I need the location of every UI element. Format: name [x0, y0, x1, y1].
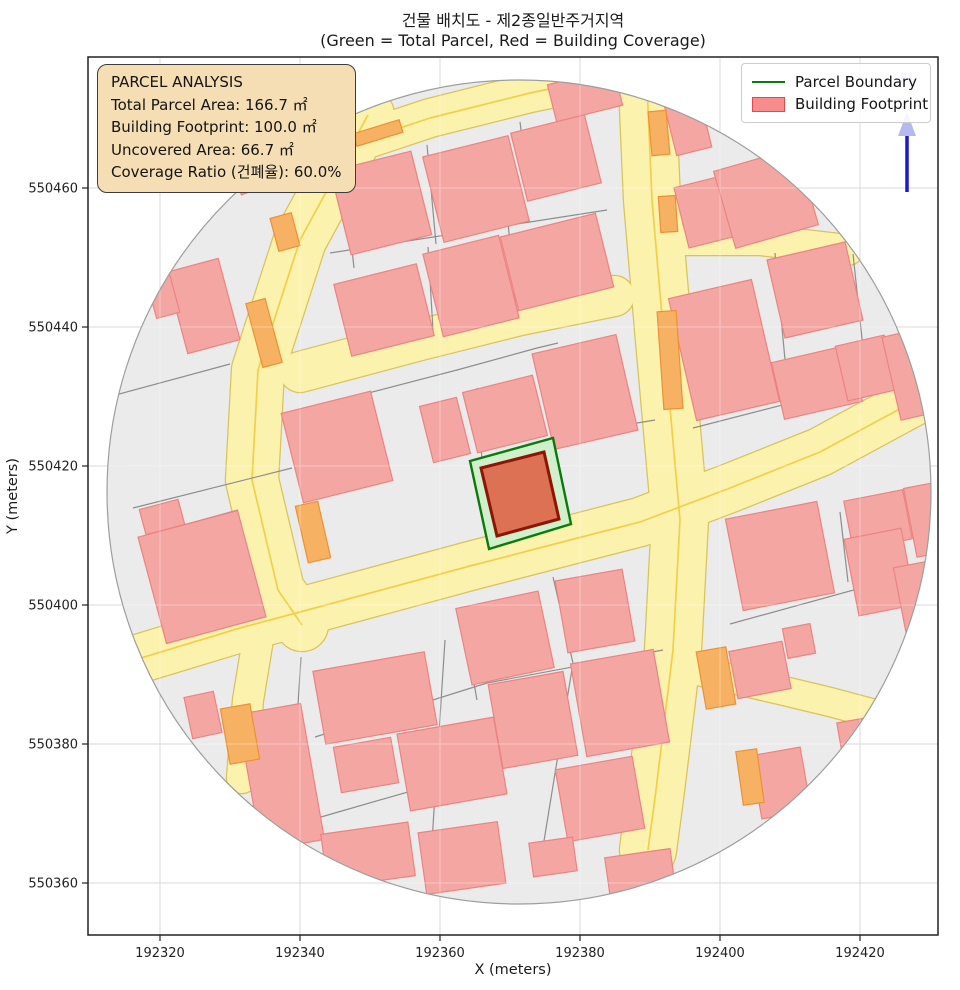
x-tick-label: 192420	[835, 946, 885, 961]
y-tick-label: 550460	[28, 182, 78, 197]
x-tick-label: 192360	[415, 946, 465, 961]
building-footprint	[729, 641, 791, 698]
x-axis-label: X (meters)	[474, 962, 551, 978]
x-tick-label: 192400	[695, 946, 745, 961]
target-building-footprint	[481, 452, 559, 536]
page-title: 건물 배치도 - 제2종일반주거지역	[88, 7, 938, 31]
building-footprint	[555, 756, 644, 841]
y-tick-label: 550400	[28, 599, 78, 614]
legend-label: Parcel Boundary	[795, 73, 917, 91]
y-tick-label: 550360	[28, 877, 78, 892]
y-axis-label: Y (meters)	[5, 458, 21, 535]
y-tick-label: 550420	[28, 460, 78, 475]
building-on-road	[648, 110, 670, 155]
building-footprint	[488, 672, 578, 769]
info-line-footprint: Building Footprint: 100.0 ㎡	[111, 116, 342, 139]
building-footprint	[571, 649, 670, 756]
figure: N192320192340192360192380192400192420550…	[0, 0, 960, 990]
info-line-uncovered: Uncovered Area: 66.7 ㎡	[111, 139, 342, 162]
building-footprint	[726, 502, 835, 611]
building-footprint	[333, 737, 398, 792]
x-tick-label: 192380	[555, 946, 605, 961]
info-line-total-area: Total Parcel Area: 166.7 ㎡	[111, 94, 342, 117]
green-line-swatch-icon	[752, 81, 785, 83]
legend-label: Building Footprint	[795, 95, 928, 113]
legend-item-parcel-boundary: Parcel Boundary	[752, 71, 920, 93]
red-patch-swatch-icon	[752, 97, 785, 112]
y-tick-label: 550440	[28, 321, 78, 336]
building-footprint	[397, 717, 507, 811]
y-tick-label: 550380	[28, 738, 78, 753]
building-on-road	[658, 196, 677, 233]
page-subtitle: (Green = Total Parcel, Red = Building Co…	[88, 31, 938, 50]
building-footprint	[555, 569, 635, 653]
info-line-coverage-ratio: Coverage Ratio (건폐율): 60.0%	[111, 161, 342, 184]
x-tick-label: 192320	[135, 946, 185, 961]
building-footprint	[529, 837, 577, 877]
legend: Parcel Boundary Building Footprint	[741, 63, 931, 123]
parcel-analysis-box: PARCEL ANALYSIS Total Parcel Area: 166.7…	[97, 64, 356, 193]
info-line-heading: PARCEL ANALYSIS	[111, 71, 342, 94]
building-footprint	[782, 624, 815, 659]
x-tick-label: 192340	[275, 946, 325, 961]
building-footprint	[767, 242, 863, 338]
legend-item-building-footprint: Building Footprint	[752, 93, 920, 115]
